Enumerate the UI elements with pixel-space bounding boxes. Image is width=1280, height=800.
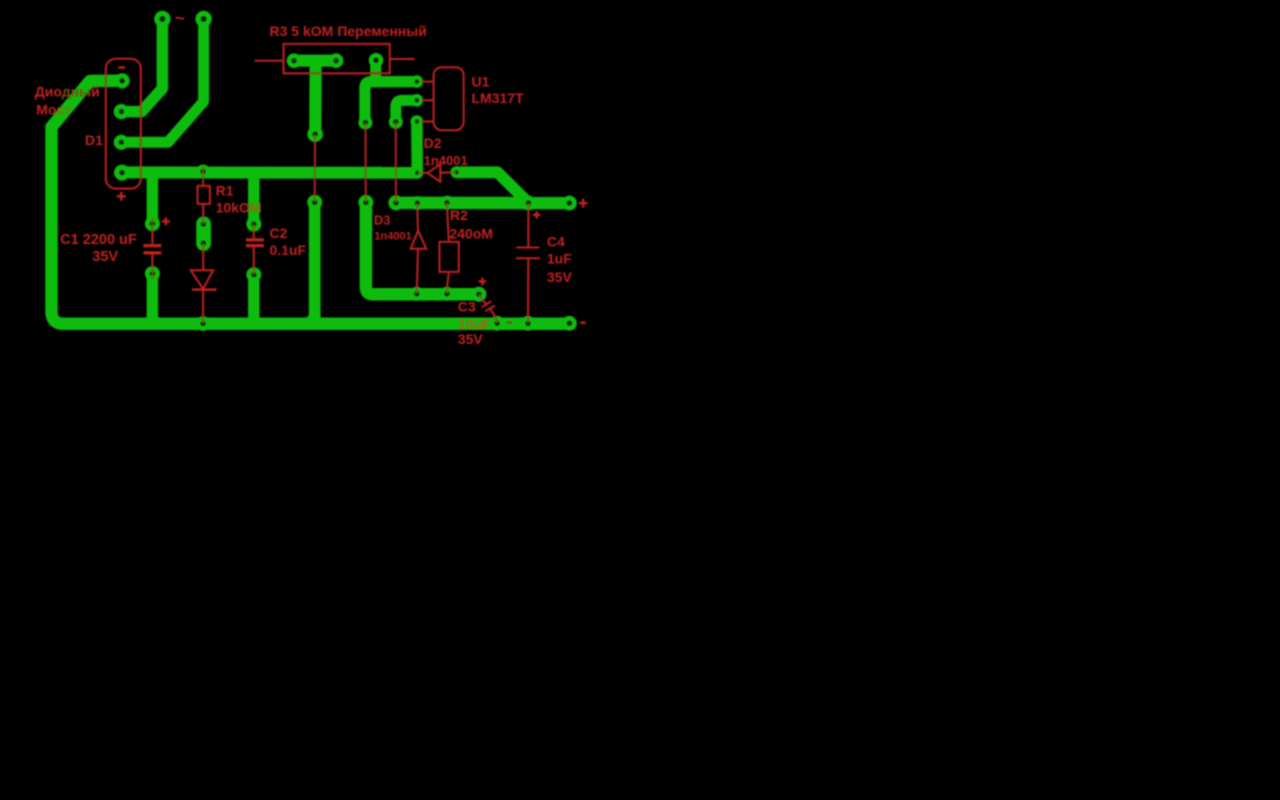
- svg-text:1uF: 1uF: [547, 251, 572, 267]
- svg-text:R1: R1: [216, 182, 234, 198]
- svg-text:10uF: 10uF: [458, 316, 491, 332]
- svg-text:35V: 35V: [458, 331, 484, 347]
- svg-text:1n4001: 1n4001: [374, 230, 411, 242]
- svg-text:240oM: 240oM: [449, 226, 493, 242]
- svg-text:C2: C2: [270, 225, 288, 241]
- svg-text:C3: C3: [458, 299, 476, 315]
- svg-text:~: ~: [175, 9, 185, 28]
- svg-text:D2: D2: [424, 135, 442, 151]
- svg-text:LM317T: LM317T: [472, 90, 525, 106]
- svg-text:10kOM: 10kOM: [216, 200, 262, 216]
- svg-text:C1 2200 uF: C1 2200 uF: [60, 232, 137, 248]
- svg-text:1n4001: 1n4001: [424, 153, 468, 168]
- svg-text:Диодный: Диодный: [35, 84, 100, 100]
- svg-text:C4: C4: [547, 234, 565, 250]
- svg-text:35V: 35V: [547, 269, 573, 285]
- svg-text:R2: R2: [450, 207, 468, 223]
- svg-text:D3: D3: [374, 212, 391, 227]
- svg-text:D1: D1: [85, 132, 103, 148]
- svg-text:0.1uF: 0.1uF: [270, 242, 307, 258]
- svg-text:R3 5 kOM Переменный: R3 5 kOM Переменный: [270, 23, 427, 39]
- svg-text:35V: 35V: [92, 249, 118, 265]
- svg-text:Мост: Мост: [36, 102, 71, 118]
- svg-text:U1: U1: [472, 73, 490, 89]
